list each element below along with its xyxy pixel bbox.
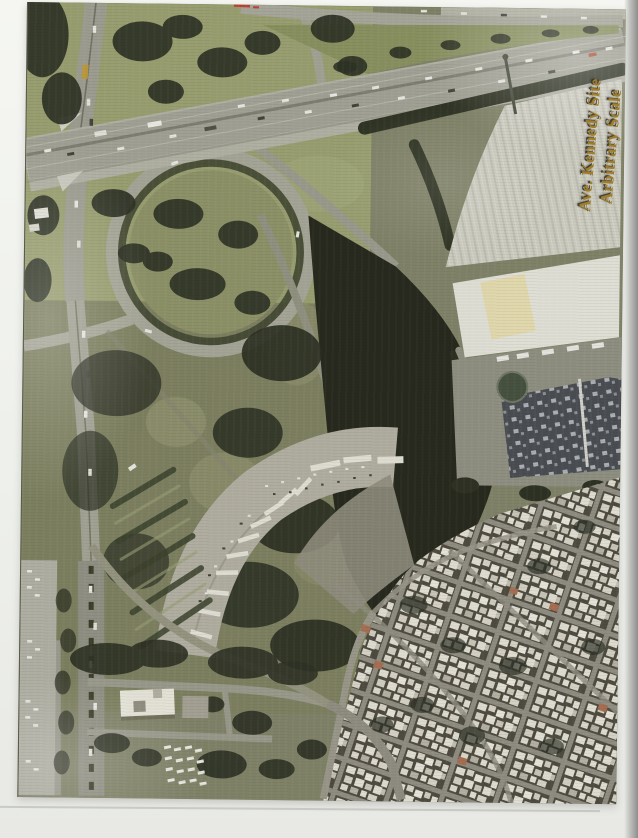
page-crease-line — [0, 806, 600, 812]
scanned-page: { "page": { "kind": "scanned aerial phot… — [0, 0, 638, 838]
aerial-photo-art — [18, 2, 626, 804]
page-edge-shadow — [624, 0, 638, 838]
aerial-photo: Ave. Kennedy Site Arbitrary Scale — [17, 2, 626, 804]
film-grain — [18, 2, 626, 804]
